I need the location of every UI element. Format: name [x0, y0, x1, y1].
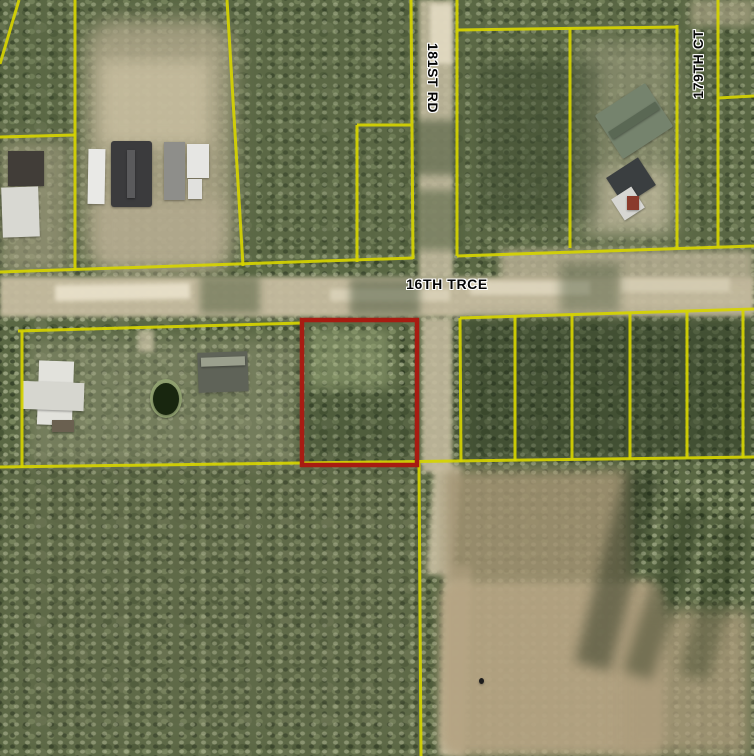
rv-white-3 — [188, 179, 202, 199]
house-white-sw-wing — [22, 381, 85, 411]
house-main-ridge — [127, 150, 135, 198]
tree-shadow-over-road-3 — [560, 262, 620, 312]
deck-sw — [52, 420, 74, 432]
aerial-parcel-map[interactable]: 181ST RD 179TH CT 16TH TRCE — [0, 0, 754, 756]
road-bright-patch-4 — [620, 278, 730, 292]
dark-woods-right-mid — [462, 318, 754, 460]
object-red-top-right — [627, 196, 639, 210]
trailer-sw-sheen — [201, 356, 245, 367]
road-south-1 — [422, 318, 452, 473]
dark-woods-mid-top — [480, 60, 600, 220]
road-south-boundary-west — [18, 323, 302, 331]
trailer-gray — [164, 142, 185, 200]
building-white-roof-left — [1, 186, 40, 237]
clearing-top-center-bright — [100, 60, 210, 145]
boundary-vertical-460 — [460, 318, 461, 462]
pond — [153, 383, 179, 415]
street-label-181st-rd: 181ST RD — [423, 3, 443, 153]
rv-white-1 — [88, 149, 106, 204]
street-label-179th-ct: 179TH CT — [688, 0, 708, 139]
house-dark-roof-left — [8, 151, 44, 186]
rv-white-2 — [187, 144, 209, 178]
road-bright-patch-1 — [55, 283, 190, 301]
trees-over-181st-2 — [415, 190, 463, 250]
street-label-16th-trce: 16TH TRCE — [372, 274, 522, 294]
path-southwest — [138, 330, 154, 352]
yard-top-center-low — [95, 200, 225, 270]
canopy-light-red-parcel — [310, 330, 390, 390]
figure-dot-field — [479, 678, 484, 684]
forest-tint-bottomleft — [0, 460, 430, 756]
canopy-dark-red-parcel — [300, 390, 420, 460]
tree-shadow-over-road-1 — [200, 276, 260, 314]
